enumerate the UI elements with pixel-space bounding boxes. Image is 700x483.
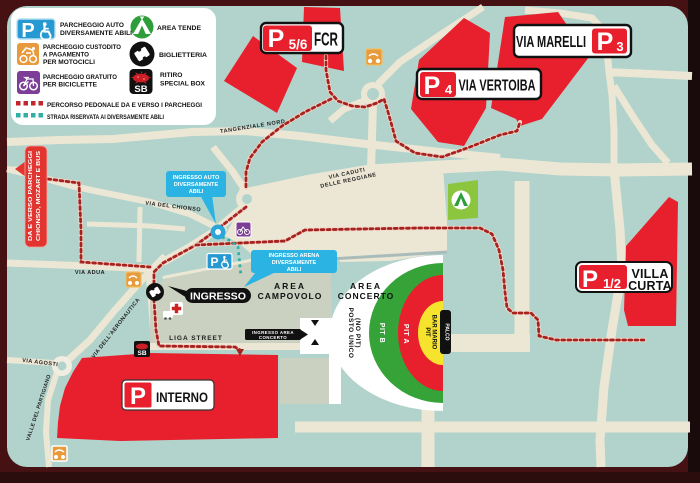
svg-text:ABILI: ABILI [189, 189, 204, 195]
svg-text:CHIONSO, MOZART E BUS: CHIONSO, MOZART E BUS [36, 150, 42, 241]
svg-text:RITIRO: RITIRO [160, 72, 182, 79]
svg-text:AREA: AREA [274, 281, 306, 291]
svg-text:BAR MARIO: BAR MARIO [431, 315, 437, 350]
svg-text:POSTO UNICO: POSTO UNICO [347, 308, 354, 359]
svg-text:SB: SB [137, 350, 146, 357]
svg-text:P: P [268, 25, 285, 53]
svg-text:PER MOTOCICLI: PER MOTOCICLI [43, 59, 95, 66]
svg-text:(NO PIT): (NO PIT) [354, 318, 361, 348]
svg-text:3: 3 [616, 39, 623, 54]
svg-text:AREA: AREA [350, 281, 382, 291]
svg-text:PARCHEGGIO CUSTODITO: PARCHEGGIO CUSTODITO [43, 44, 121, 51]
svg-text:DA E VERSO PARCHEGGI: DA E VERSO PARCHEGGI [28, 150, 34, 241]
svg-text:P: P [424, 72, 441, 100]
svg-text:PIT B: PIT B [378, 323, 385, 343]
svg-text:DIVERSAMENTE: DIVERSAMENTE [272, 260, 317, 266]
svg-text:INGRESSO AUTO: INGRESSO AUTO [173, 175, 220, 181]
svg-text:PARCHEGGIO GRATUITO: PARCHEGGIO GRATUITO [43, 74, 117, 81]
svg-text:1/2: 1/2 [603, 276, 621, 291]
svg-text:PER BICICLETTE: PER BICICLETTE [43, 82, 98, 89]
svg-text:CURTA: CURTA [628, 279, 672, 293]
svg-text:PIT A: PIT A [402, 324, 409, 344]
svg-text:INTERNO: INTERNO [156, 390, 208, 405]
svg-text:VIA VERTOIBA: VIA VERTOIBA [459, 78, 536, 95]
svg-text:P: P [597, 28, 614, 56]
svg-text:4: 4 [445, 82, 453, 97]
svg-text:ABILI: ABILI [287, 267, 302, 273]
svg-text:5/6: 5/6 [289, 37, 308, 52]
svg-text:PERCORSO PEDONALE DA E VERSO I: PERCORSO PEDONALE DA E VERSO I PARCHEGGI [47, 102, 202, 109]
svg-text:PIT: PIT [424, 327, 430, 337]
svg-text:SB: SB [134, 84, 147, 95]
svg-text:STRADA RISERVATA AI DIVERSAMEN: STRADA RISERVATA AI DIVERSAMENTE ABILI [47, 114, 164, 121]
svg-text:DIVERSAMENTE ABILI: DIVERSAMENTE ABILI [60, 30, 132, 37]
svg-text:PARCHEGGIO AUTO: PARCHEGGIO AUTO [60, 22, 124, 29]
svg-text:VIA ADUA: VIA ADUA [75, 270, 105, 276]
svg-text:P: P [582, 266, 598, 293]
svg-text:P: P [21, 20, 34, 42]
svg-text:P: P [130, 383, 146, 410]
svg-text:A PAGAMENTO: A PAGAMENTO [43, 52, 89, 59]
svg-text:PALCO: PALCO [444, 323, 450, 340]
svg-text:CONCERTO: CONCERTO [259, 335, 287, 340]
svg-text:FCR: FCR [314, 29, 338, 50]
svg-text:BIGLIETTERIA: BIGLIETTERIA [159, 52, 207, 59]
svg-text:INGRESSO ARENA: INGRESSO ARENA [269, 253, 320, 259]
svg-text:LIGA STREET: LIGA STREET [169, 335, 223, 342]
svg-text:CAMPOVOLO: CAMPOVOLO [258, 291, 323, 301]
svg-text:CONCERTO: CONCERTO [338, 291, 395, 301]
svg-text:P: P [210, 255, 218, 269]
svg-text:VIA MARELLI: VIA MARELLI [516, 34, 586, 51]
svg-text:AREA TENDE: AREA TENDE [157, 25, 202, 32]
svg-text:DIVERSAMENTE: DIVERSAMENTE [174, 182, 219, 188]
svg-text:SPECIAL BOX: SPECIAL BOX [160, 81, 206, 88]
svg-text:INGRESSO: INGRESSO [190, 291, 246, 303]
